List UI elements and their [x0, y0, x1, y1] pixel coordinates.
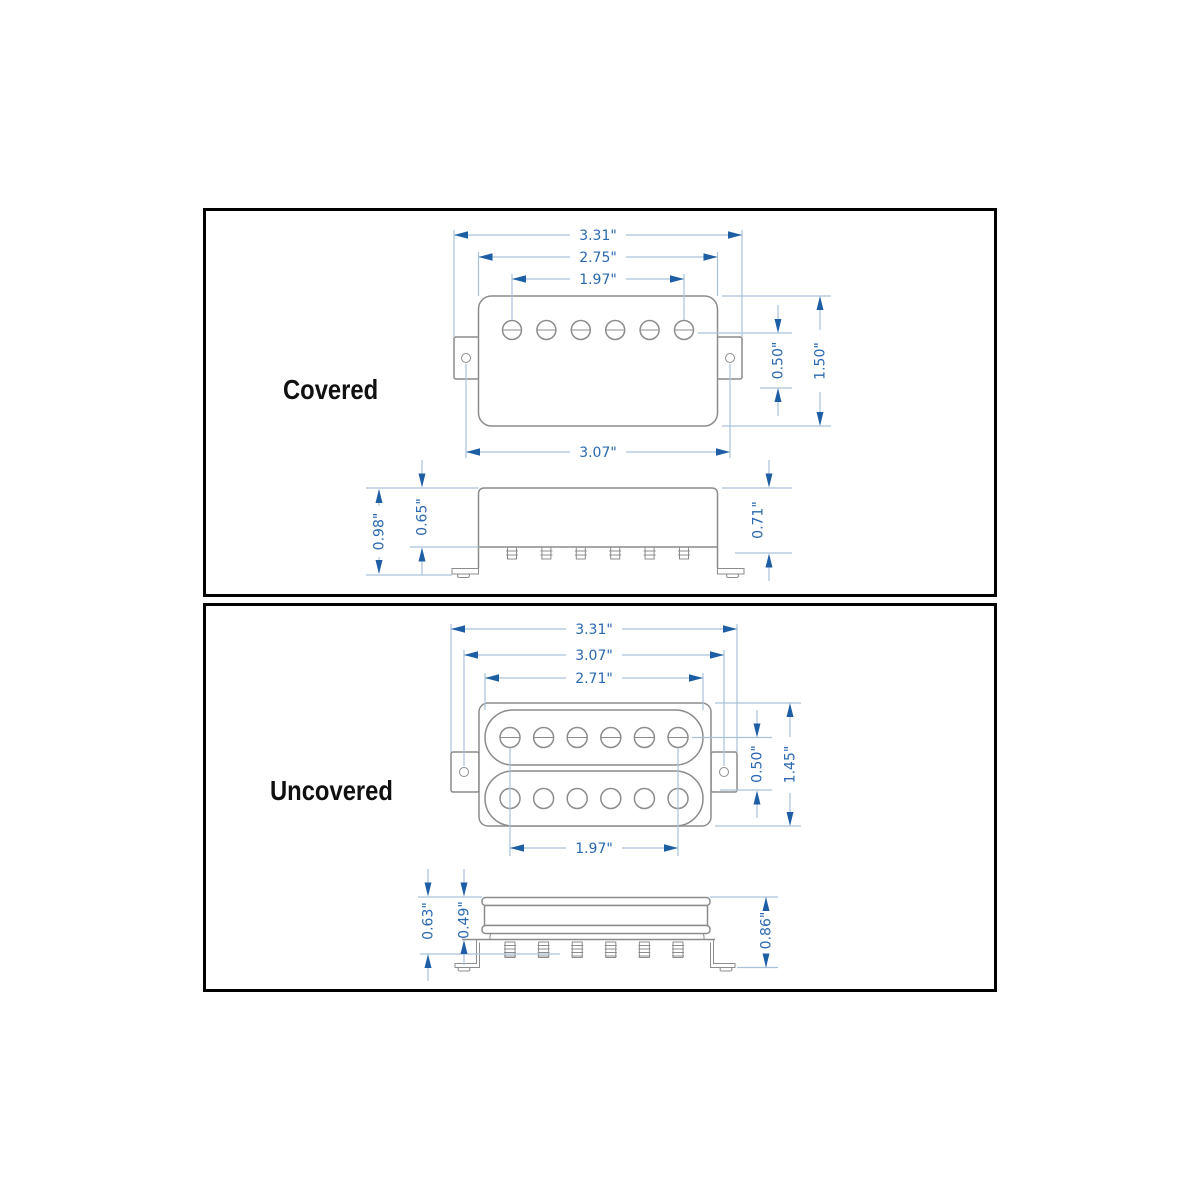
svg-text:0.63": 0.63" — [421, 902, 437, 940]
svg-text:3.07": 3.07" — [579, 445, 617, 461]
uncovered-side-view — [455, 898, 735, 972]
svg-text:0.50": 0.50" — [750, 745, 766, 783]
svg-text:0.71": 0.71" — [751, 501, 767, 539]
covered-top-view — [454, 296, 742, 426]
dim-uncovered-bobbin-depth: 0.49" — [457, 869, 473, 965]
svg-text:0.65": 0.65" — [415, 498, 431, 536]
mount-legs — [452, 547, 744, 578]
mount-hole-left — [462, 354, 471, 363]
mount-legs — [455, 940, 735, 972]
svg-text:3.07": 3.07" — [575, 648, 613, 664]
dim-uncovered-base-depth: 0.86" — [710, 897, 778, 968]
svg-text:0.86": 0.86" — [759, 912, 775, 950]
uncovered-panel: Uncovered — [203, 603, 997, 992]
dim-covered-cover-depth: 0.65" — [410, 460, 479, 575]
uncovered-diagram: Uncovered — [203, 603, 997, 992]
dim-covered-base-depth: 0.71" — [722, 460, 792, 581]
svg-text:3.31": 3.31" — [575, 622, 613, 638]
screw-studs — [504, 942, 684, 958]
uncovered-top-view — [451, 703, 737, 826]
mount-hole-right — [726, 354, 735, 363]
covered-panel: Covered — [203, 208, 997, 597]
covered-label: Covered — [283, 373, 378, 405]
svg-text:0.49": 0.49" — [457, 901, 473, 939]
pickup-cover — [479, 296, 718, 426]
screw-tips — [506, 547, 690, 559]
covered-diagram: Covered — [203, 208, 997, 597]
mount-hole-left — [460, 768, 469, 777]
mount-hole-right — [720, 768, 729, 777]
uncovered-label: Uncovered — [270, 774, 393, 806]
svg-text:3.31": 3.31" — [579, 228, 617, 244]
svg-text:0.50": 0.50" — [771, 342, 787, 380]
svg-text:2.71": 2.71" — [575, 671, 613, 687]
svg-text:1.97": 1.97" — [575, 841, 613, 857]
svg-text:1.50": 1.50" — [813, 342, 829, 380]
svg-text:2.75": 2.75" — [579, 250, 617, 266]
covered-side-view — [452, 488, 744, 578]
svg-text:1.45": 1.45" — [783, 746, 799, 784]
svg-text:1.97": 1.97" — [579, 272, 617, 288]
svg-text:0.98": 0.98" — [372, 513, 388, 551]
page: Covered — [0, 0, 1200, 1200]
